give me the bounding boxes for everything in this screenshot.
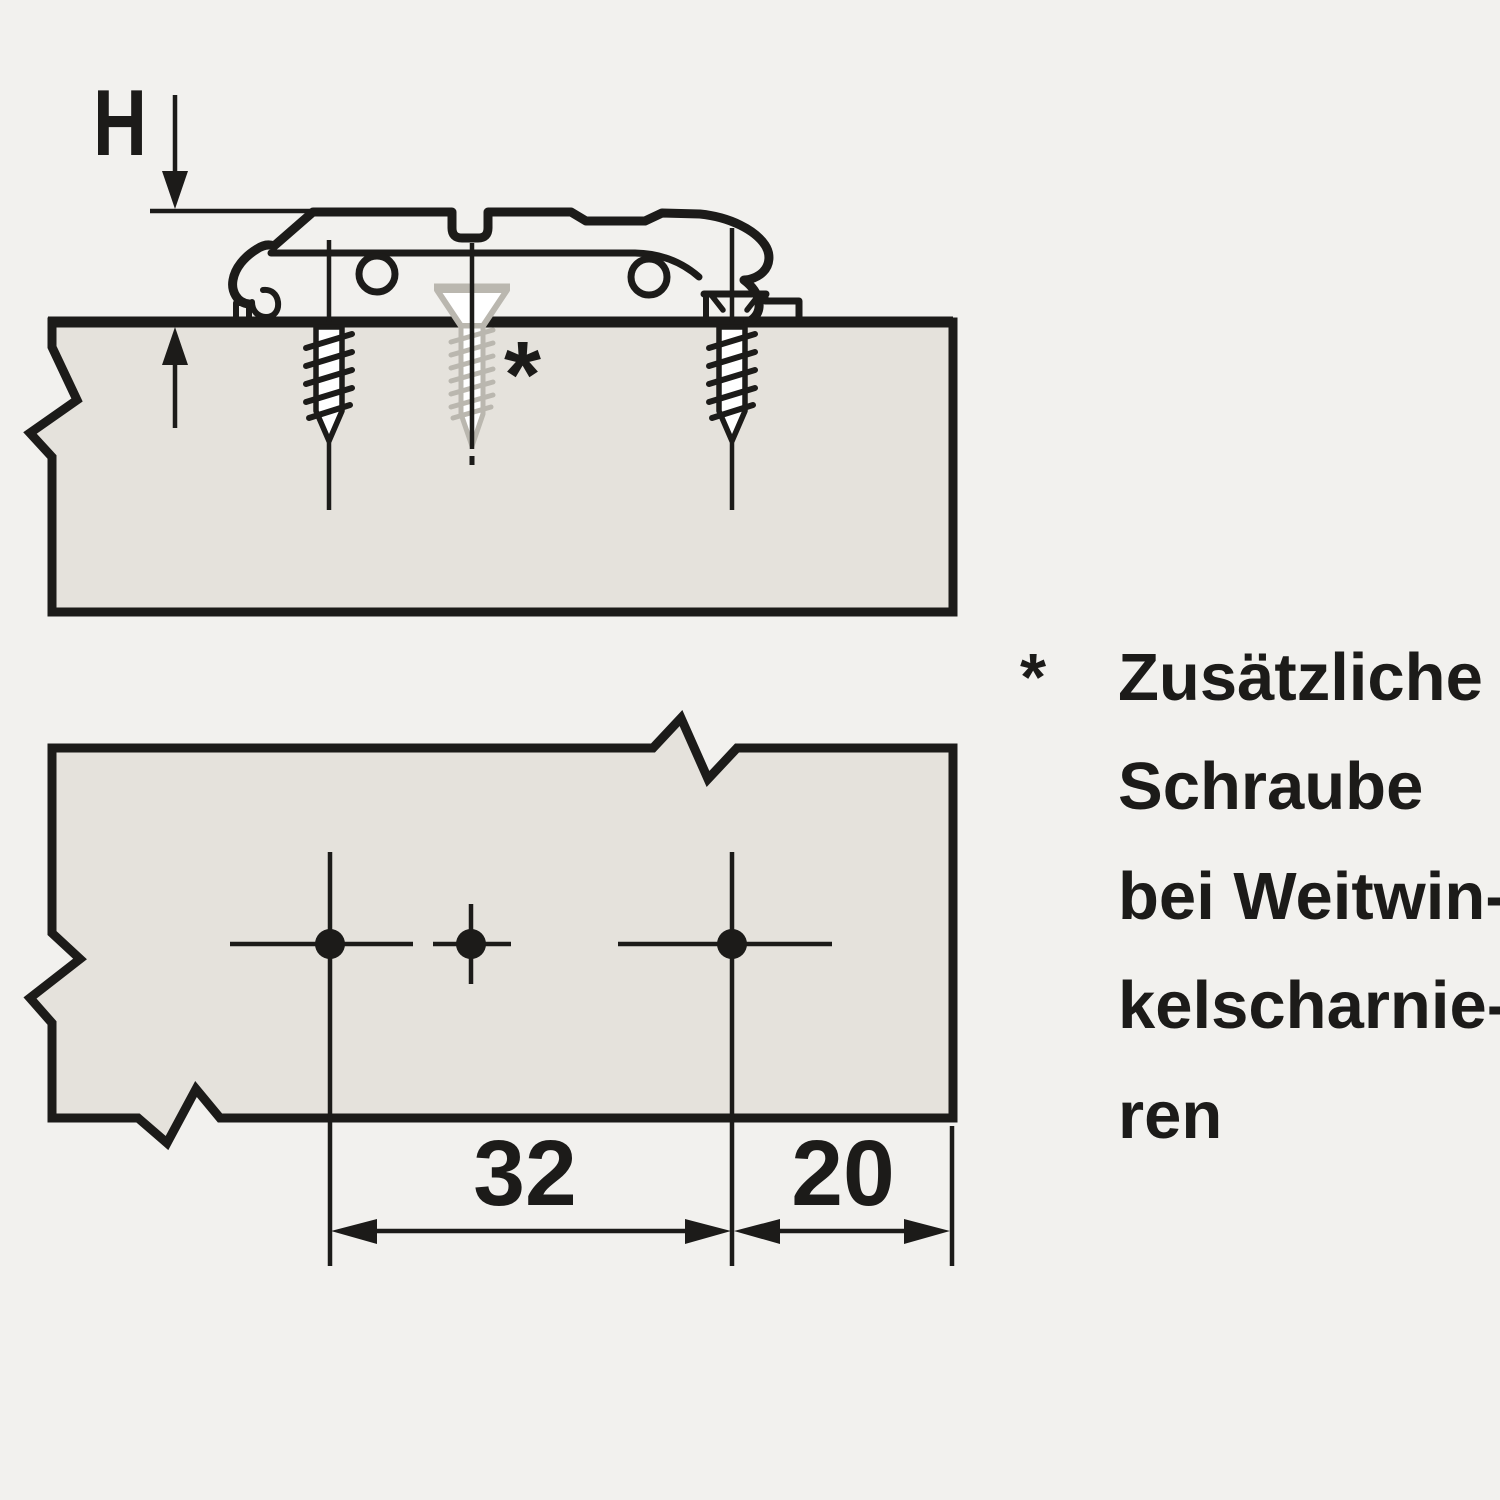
height-dim-arrow-down <box>162 171 188 209</box>
dimension-32: 32 <box>331 1121 731 1244</box>
drill-right-dot <box>717 929 747 959</box>
mounting-plate-left-foot <box>252 290 278 317</box>
legend-line-4: kelscharnie- <box>1118 968 1500 1043</box>
additional-screw-asterisk: * <box>504 322 541 428</box>
drill-left-dot <box>315 929 345 959</box>
legend-line-3: bei Weitwin- <box>1118 859 1500 934</box>
technical-drawing-page: H <box>0 0 1500 1500</box>
legend-line-2: Schraube <box>1118 749 1423 824</box>
plate-hole-right <box>631 259 667 295</box>
dim-32-arrow-right <box>685 1219 731 1244</box>
drill-middle-dot <box>456 929 486 959</box>
mounting-plate <box>233 212 799 322</box>
dimension-20: 20 <box>734 1121 950 1244</box>
right-screw-bracket-step <box>765 294 799 320</box>
height-dim-label: H <box>93 70 147 175</box>
dim-32-label: 32 <box>473 1121 576 1225</box>
legend-line-5: ren <box>1118 1078 1222 1153</box>
dim-20-arrow-right <box>904 1219 950 1244</box>
dim-20-label: 20 <box>791 1121 894 1225</box>
mounting-plate-left-tab <box>236 303 249 318</box>
dim-32-arrow-left <box>331 1219 377 1244</box>
right-screw-head-left-slant <box>712 296 723 310</box>
legend: * Zusätzliche Schraube bei Weitwin- kels… <box>1020 640 1500 1153</box>
panel-cross-section <box>30 322 953 612</box>
panel-top-view <box>30 718 953 1143</box>
legend-asterisk: * <box>1020 640 1047 715</box>
dim-20-arrow-left <box>734 1219 780 1244</box>
side-view-diagram: H <box>30 70 953 612</box>
top-view-diagram: 32 20 <box>30 718 953 1266</box>
legend-line-1: Zusätzliche <box>1118 640 1483 715</box>
hinge-mounting-plate-drawing: H <box>0 0 1500 1500</box>
plate-hole-left <box>359 256 395 292</box>
